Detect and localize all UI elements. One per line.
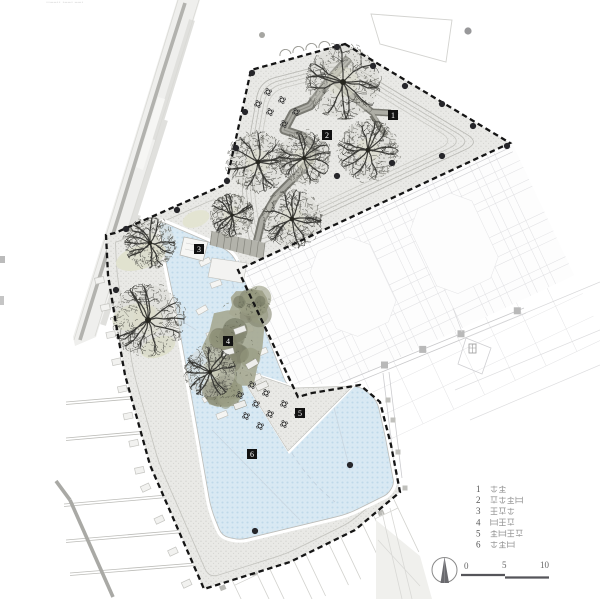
svg-text:··−−·· ·−−· −−·: ··−−·· ·−−· −−· (46, 0, 83, 6)
svg-text:1: 1 (391, 111, 395, 120)
svg-text:1: 1 (476, 484, 481, 494)
svg-text:5: 5 (502, 560, 507, 570)
svg-text:2: 2 (325, 131, 329, 140)
svg-text:4: 4 (476, 517, 481, 527)
svg-text:2: 2 (476, 495, 481, 505)
svg-text:0: 0 (464, 561, 469, 571)
svg-text:3: 3 (476, 506, 481, 516)
svg-text:4: 4 (226, 337, 230, 346)
svg-text:5: 5 (476, 528, 481, 538)
svg-text:6: 6 (476, 540, 481, 550)
svg-text:5: 5 (298, 409, 302, 418)
svg-text:3: 3 (197, 245, 201, 254)
svg-text:10: 10 (540, 560, 550, 570)
svg-text:6: 6 (250, 450, 254, 459)
